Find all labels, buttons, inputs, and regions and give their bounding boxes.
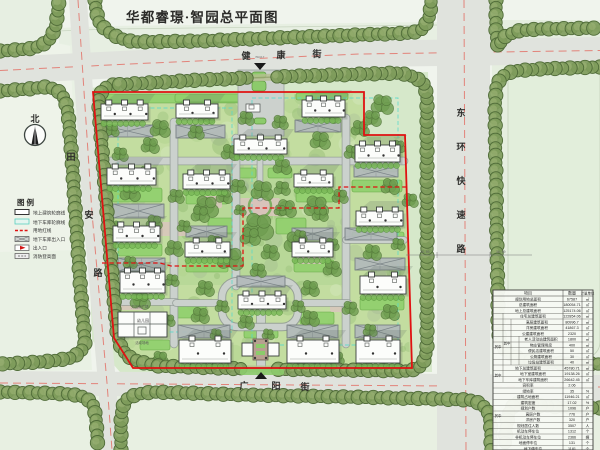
svg-text:户: 户 (586, 417, 590, 422)
svg-text:阳: 阳 (271, 381, 280, 391)
svg-text:康: 康 (276, 49, 286, 60)
svg-text:活动场地: 活动场地 (135, 340, 149, 345)
svg-text:便民店建筑面积: 便民店建筑面积 (528, 348, 554, 353)
svg-text:1096: 1096 (568, 407, 576, 411)
svg-text:个: 个 (586, 446, 590, 450)
svg-text:㎡: ㎡ (586, 319, 590, 324)
svg-text:地下车库出入口: 地下车库出入口 (33, 236, 66, 243)
svg-text:㎡: ㎡ (586, 377, 590, 382)
svg-text:消防登高面: 消防登高面 (33, 253, 56, 260)
svg-text:2366: 2366 (568, 435, 576, 439)
svg-text:17.02: 17.02 (567, 401, 576, 405)
svg-text:125174.06: 125174.06 (563, 309, 580, 313)
svg-text:辆: 辆 (586, 434, 590, 439)
svg-text:㎡: ㎡ (586, 360, 590, 365)
svg-text:总建筑面积: 总建筑面积 (519, 302, 538, 307)
svg-text:公建建筑面积: 公建建筑面积 (522, 331, 544, 336)
svg-text:图例: 图例 (17, 197, 36, 207)
svg-text:路: 路 (93, 267, 103, 278)
svg-text:规划居住人数: 规划居住人数 (517, 423, 539, 428)
svg-text:街: 街 (299, 381, 309, 392)
svg-text:40: 40 (570, 361, 574, 365)
svg-text:洋房建筑面积: 洋房建筑面积 (526, 325, 548, 330)
svg-text:速: 速 (456, 209, 465, 220)
svg-text:36.00: 36.00 (496, 250, 506, 254)
svg-text:50: 50 (570, 349, 574, 353)
svg-text:地上总建筑面积: 地上总建筑面积 (515, 308, 541, 313)
svg-text:东: 东 (456, 107, 465, 118)
svg-text:地下停车位: 地下停车位 (524, 446, 543, 450)
svg-text:㎡: ㎡ (586, 394, 590, 399)
svg-text:㎡: ㎡ (586, 365, 590, 370)
svg-text:广: 广 (239, 380, 248, 391)
svg-text:㎡: ㎡ (586, 325, 590, 330)
svg-text:田: 田 (66, 152, 75, 162)
svg-text:项目: 项目 (524, 290, 532, 296)
svg-text:131: 131 (569, 441, 575, 445)
svg-text:地下车库轮廓线: 地下车库轮廓线 (33, 219, 66, 226)
svg-text:出入口: 出入口 (33, 245, 47, 252)
svg-text:街: 街 (311, 48, 321, 59)
svg-text:122854.06: 122854.06 (563, 315, 580, 319)
svg-text:30: 30 (570, 355, 574, 359)
svg-text:其中: 其中 (495, 344, 502, 349)
svg-text:容积率: 容积率 (522, 383, 533, 388)
svg-text:垃圾站建筑面积: 垃圾站建筑面积 (528, 360, 554, 365)
svg-text:㎡: ㎡ (586, 342, 590, 347)
svg-text:400: 400 (569, 343, 575, 347)
svg-text:华都睿璟·智园总平面图: 华都睿璟·智园总平面图 (126, 9, 279, 25)
svg-text:1800: 1800 (568, 338, 576, 342)
svg-text:洋房户数: 洋房户数 (526, 417, 541, 422)
svg-text:规划用地总面积: 规划用地总面积 (515, 296, 541, 301)
svg-text:公厕建筑面积: 公厕建筑面积 (530, 354, 552, 359)
svg-text:个: 个 (586, 440, 590, 445)
svg-text:㎡: ㎡ (586, 348, 590, 353)
svg-text:老人活动站建筑面积: 老人活动站建筑面积 (524, 337, 557, 342)
svg-text:67587: 67587 (567, 297, 577, 301)
svg-text:用地红线: 用地红线 (33, 227, 52, 234)
svg-text:万云街广场: 万云街广场 (132, 304, 150, 309)
svg-text:快: 快 (456, 175, 466, 186)
svg-text:户: 户 (586, 411, 590, 416)
svg-text:个: 个 (586, 429, 590, 434)
svg-text:1312: 1312 (568, 430, 576, 434)
svg-text:数量: 数量 (568, 290, 576, 296)
svg-text:绿地率: 绿地率 (522, 388, 533, 393)
svg-text:高层户数: 高层户数 (526, 411, 541, 416)
svg-text:地面停车位: 地面停车位 (519, 440, 538, 445)
svg-text:建筑占地面积: 建筑占地面积 (517, 394, 539, 399)
svg-text:安: 安 (84, 209, 93, 220)
svg-text:规划户数: 规划户数 (521, 406, 536, 411)
svg-text:㎡: ㎡ (586, 337, 590, 342)
svg-text:北: 北 (30, 113, 39, 124)
svg-text:2320: 2320 (568, 332, 576, 336)
svg-text:机动车停车位: 机动车停车位 (517, 429, 539, 434)
svg-text:高层建筑面积: 高层建筑面积 (526, 319, 548, 324)
svg-text:180054.71: 180054.71 (563, 303, 580, 307)
svg-text:地上建筑轮廓线: 地上建筑轮廓线 (33, 210, 66, 217)
svg-text:非机动车停车位: 非机动车停车位 (515, 434, 541, 439)
svg-text:320: 320 (569, 418, 575, 422)
svg-text:㎡: ㎡ (586, 354, 590, 359)
svg-text:26642.45: 26642.45 (564, 378, 579, 382)
svg-text:物业管理用房: 物业管理用房 (530, 342, 552, 347)
svg-text:㎡: ㎡ (586, 331, 590, 336)
svg-text:㎡: ㎡ (586, 314, 590, 319)
svg-text:建筑密度: 建筑密度 (521, 400, 536, 405)
svg-text:其中: 其中 (495, 373, 502, 378)
svg-text:35: 35 (570, 389, 574, 393)
svg-text:计量单位: 计量单位 (581, 291, 595, 296)
svg-text:11946.21: 11946.21 (564, 395, 579, 399)
svg-text:幼儿园: 幼儿园 (137, 317, 149, 323)
svg-text:41867.3: 41867.3 (565, 326, 578, 330)
svg-text:人: 人 (586, 423, 590, 428)
svg-text:户: 户 (586, 406, 590, 411)
svg-text:3507: 3507 (568, 424, 576, 428)
svg-text:地下总建筑面积: 地下总建筑面积 (515, 365, 541, 370)
svg-text:地下室建筑面积: 地下室建筑面积 (520, 371, 546, 376)
svg-text:其中: 其中 (495, 413, 502, 418)
svg-text:㎡: ㎡ (586, 308, 590, 313)
svg-text:路: 路 (456, 243, 466, 254)
svg-text:地下车库建筑面积: 地下车库建筑面积 (518, 377, 548, 382)
svg-text:住宅总建筑面积: 住宅总建筑面积 (520, 314, 546, 319)
svg-text:健: 健 (241, 50, 250, 61)
svg-text:80996.7: 80996.7 (565, 320, 578, 324)
svg-text:其中: 其中 (504, 340, 511, 345)
svg-text:㎡: ㎡ (586, 296, 590, 301)
svg-text:36.00: 36.00 (420, 250, 430, 254)
svg-text:MH017: MH017 (255, 56, 264, 59)
svg-text:㎡: ㎡ (586, 302, 590, 307)
svg-text:环: 环 (456, 142, 465, 152)
svg-text:㎡: ㎡ (586, 371, 590, 376)
svg-text:776: 776 (569, 412, 575, 416)
svg-text:2.06: 2.06 (568, 384, 575, 388)
svg-text:45780.71: 45780.71 (564, 366, 579, 370)
svg-text:19138.26: 19138.26 (564, 372, 579, 376)
